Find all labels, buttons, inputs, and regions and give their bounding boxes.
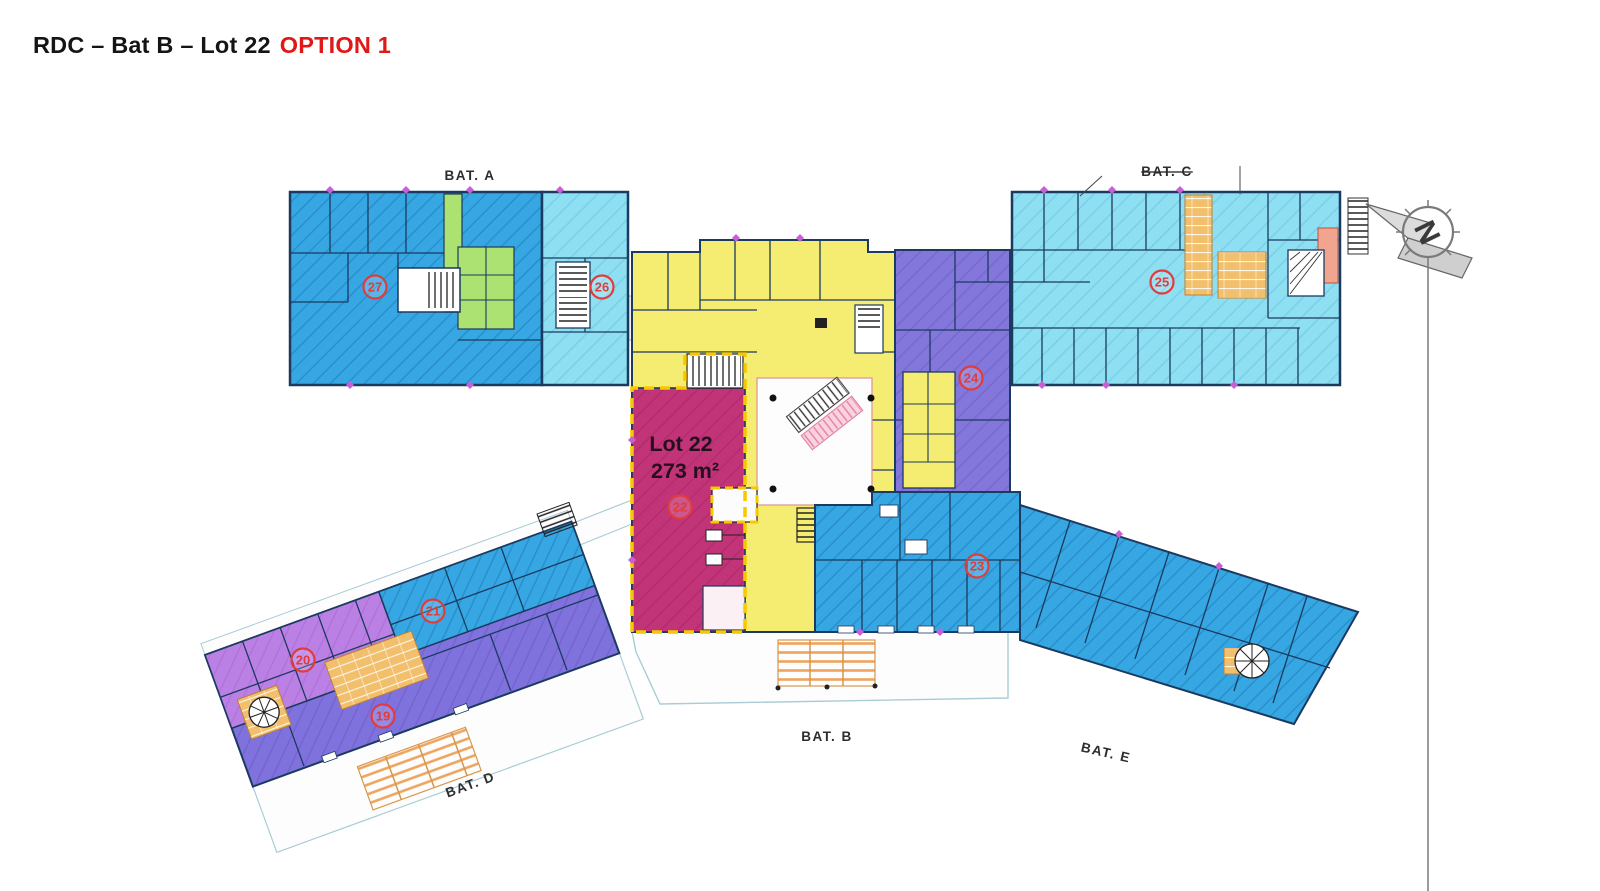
pergola	[776, 640, 878, 691]
zone-number: 26	[595, 280, 609, 295]
bat-c-block	[1012, 166, 1368, 385]
label-bat-a: BAT. A	[445, 168, 496, 183]
label-bat-e: BAT. E	[1080, 740, 1133, 766]
bat-a-block	[290, 192, 628, 385]
zone-badge-22: 22	[669, 496, 692, 519]
zone-badge-20: 20	[292, 649, 315, 672]
north-compass: N	[1366, 200, 1472, 891]
bat-e-wing	[1020, 505, 1358, 724]
zone-badge-25: 25	[1151, 271, 1174, 294]
zone-badge-19: 19	[372, 705, 395, 728]
zone-number: 22	[673, 500, 687, 515]
blue-zone-center	[815, 492, 1020, 633]
zone-number: 27	[368, 280, 382, 295]
zone-number: 25	[1155, 275, 1169, 290]
page: RDC – Bat B – Lot 22OPTION 1	[0, 0, 1600, 891]
zone-number: 21	[426, 604, 440, 619]
external-stair	[1348, 198, 1368, 254]
zone-number: 23	[970, 559, 984, 574]
zone-badge-21: 21	[422, 600, 445, 623]
lot-name: Lot 22	[649, 432, 712, 456]
zone-number: 19	[376, 709, 390, 724]
zone-number: 20	[296, 653, 310, 668]
zone-badge-27: 27	[364, 276, 387, 299]
lot-area: 273 m²	[651, 459, 719, 483]
zone-badge-24: 24	[960, 367, 983, 390]
bat-b-block: Lot 22 273 m²	[632, 240, 1020, 633]
lot-22: Lot 22 273 m²	[632, 354, 757, 632]
purple-zone	[895, 250, 1010, 492]
zone-number: 24	[964, 371, 979, 386]
bat-d-block: BAT. D	[201, 510, 647, 861]
label-bat-c: BAT. C	[1141, 164, 1193, 179]
floor-plan: N	[0, 0, 1600, 891]
label-bat-b: BAT. B	[801, 729, 853, 744]
zone-badge-26: 26	[591, 276, 614, 299]
spiral-stair-e	[1235, 644, 1269, 678]
zone-badge-23: 23	[966, 555, 989, 578]
